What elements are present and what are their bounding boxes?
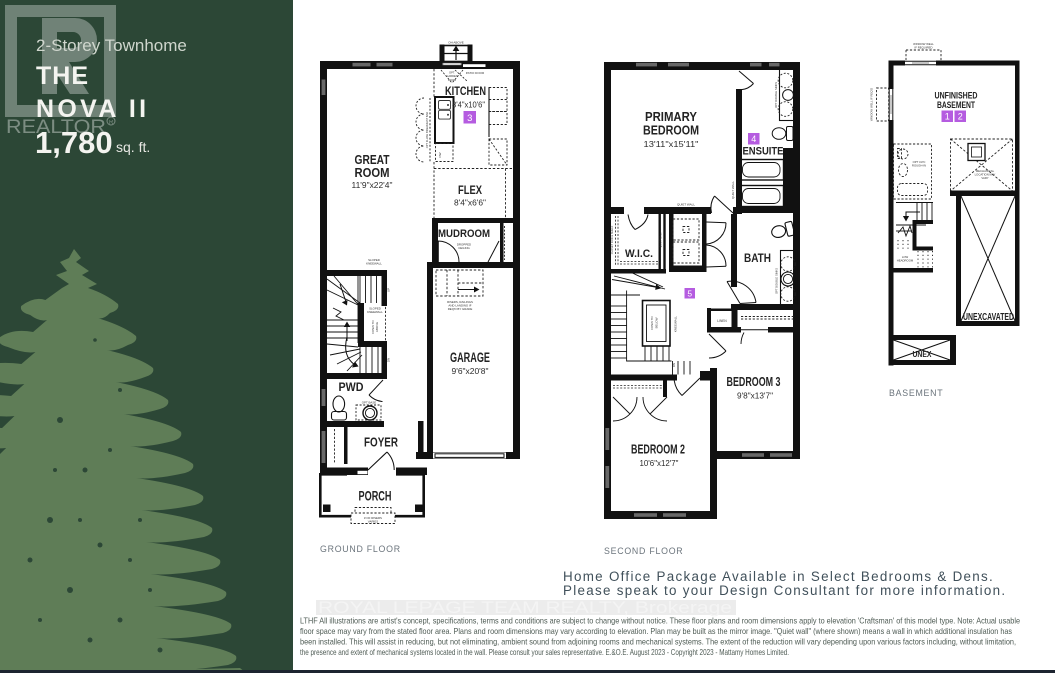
svg-text:been installed. This will assi: been installed. This will assist in redu… xyxy=(300,637,1016,647)
svg-text:LTHF All illustrations are art: LTHF All illustrations are artist's conc… xyxy=(300,616,1020,626)
svg-text:floor space may vary from the: floor space may vary from the stated flo… xyxy=(300,626,1012,636)
svg-text:the presence and extent of mec: the presence and extent of mechanical sy… xyxy=(300,647,789,657)
